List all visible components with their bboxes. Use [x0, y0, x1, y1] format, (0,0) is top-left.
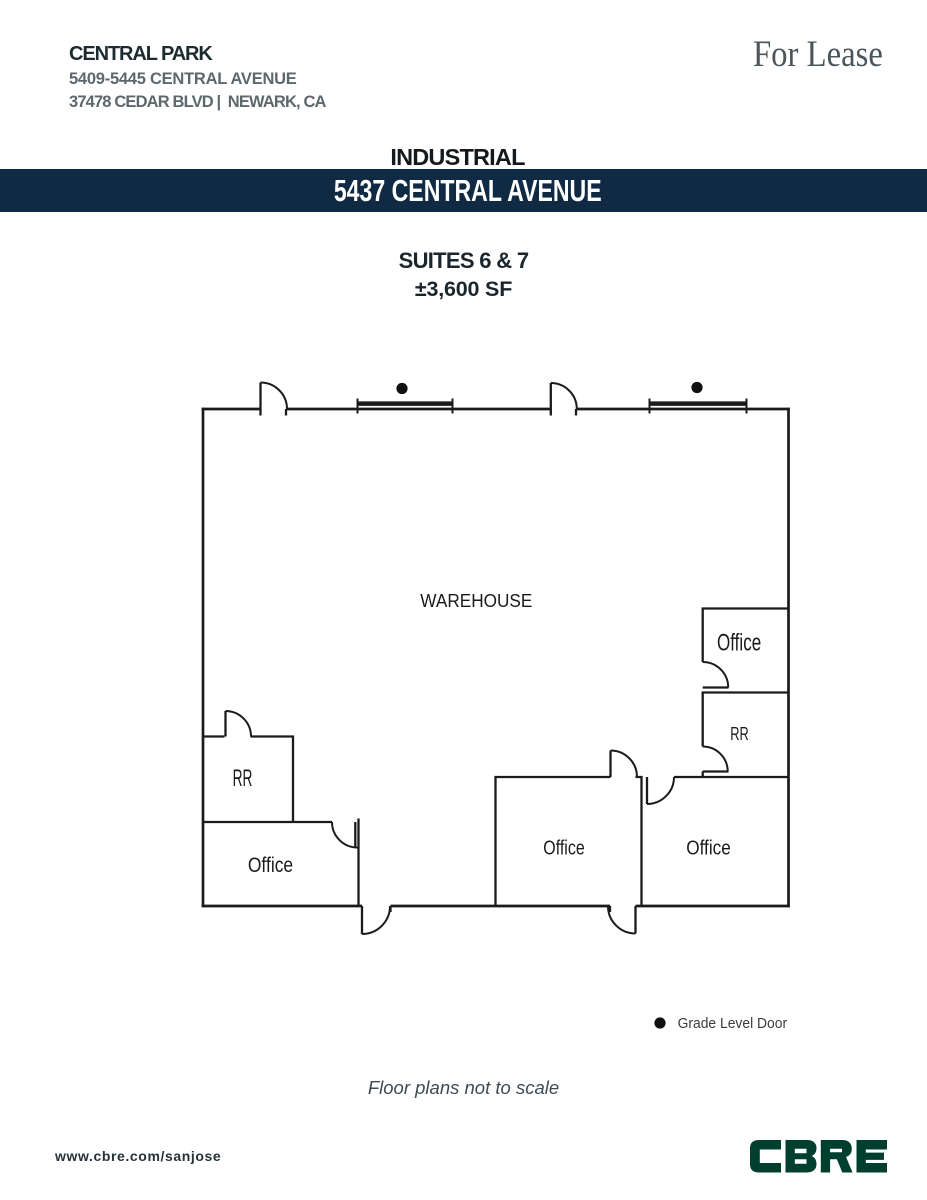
svg-text:Office: Office: [717, 630, 761, 657]
svg-text:Grade Level Door: Grade Level Door: [678, 1016, 788, 1032]
svg-text:WAREHOUSE: WAREHOUSE: [420, 591, 532, 612]
svg-text:RR: RR: [233, 765, 253, 792]
svg-text:Office: Office: [248, 854, 293, 877]
svg-text:RR: RR: [730, 723, 749, 744]
svg-text:Office: Office: [686, 838, 731, 860]
svg-text:Office: Office: [543, 838, 584, 860]
